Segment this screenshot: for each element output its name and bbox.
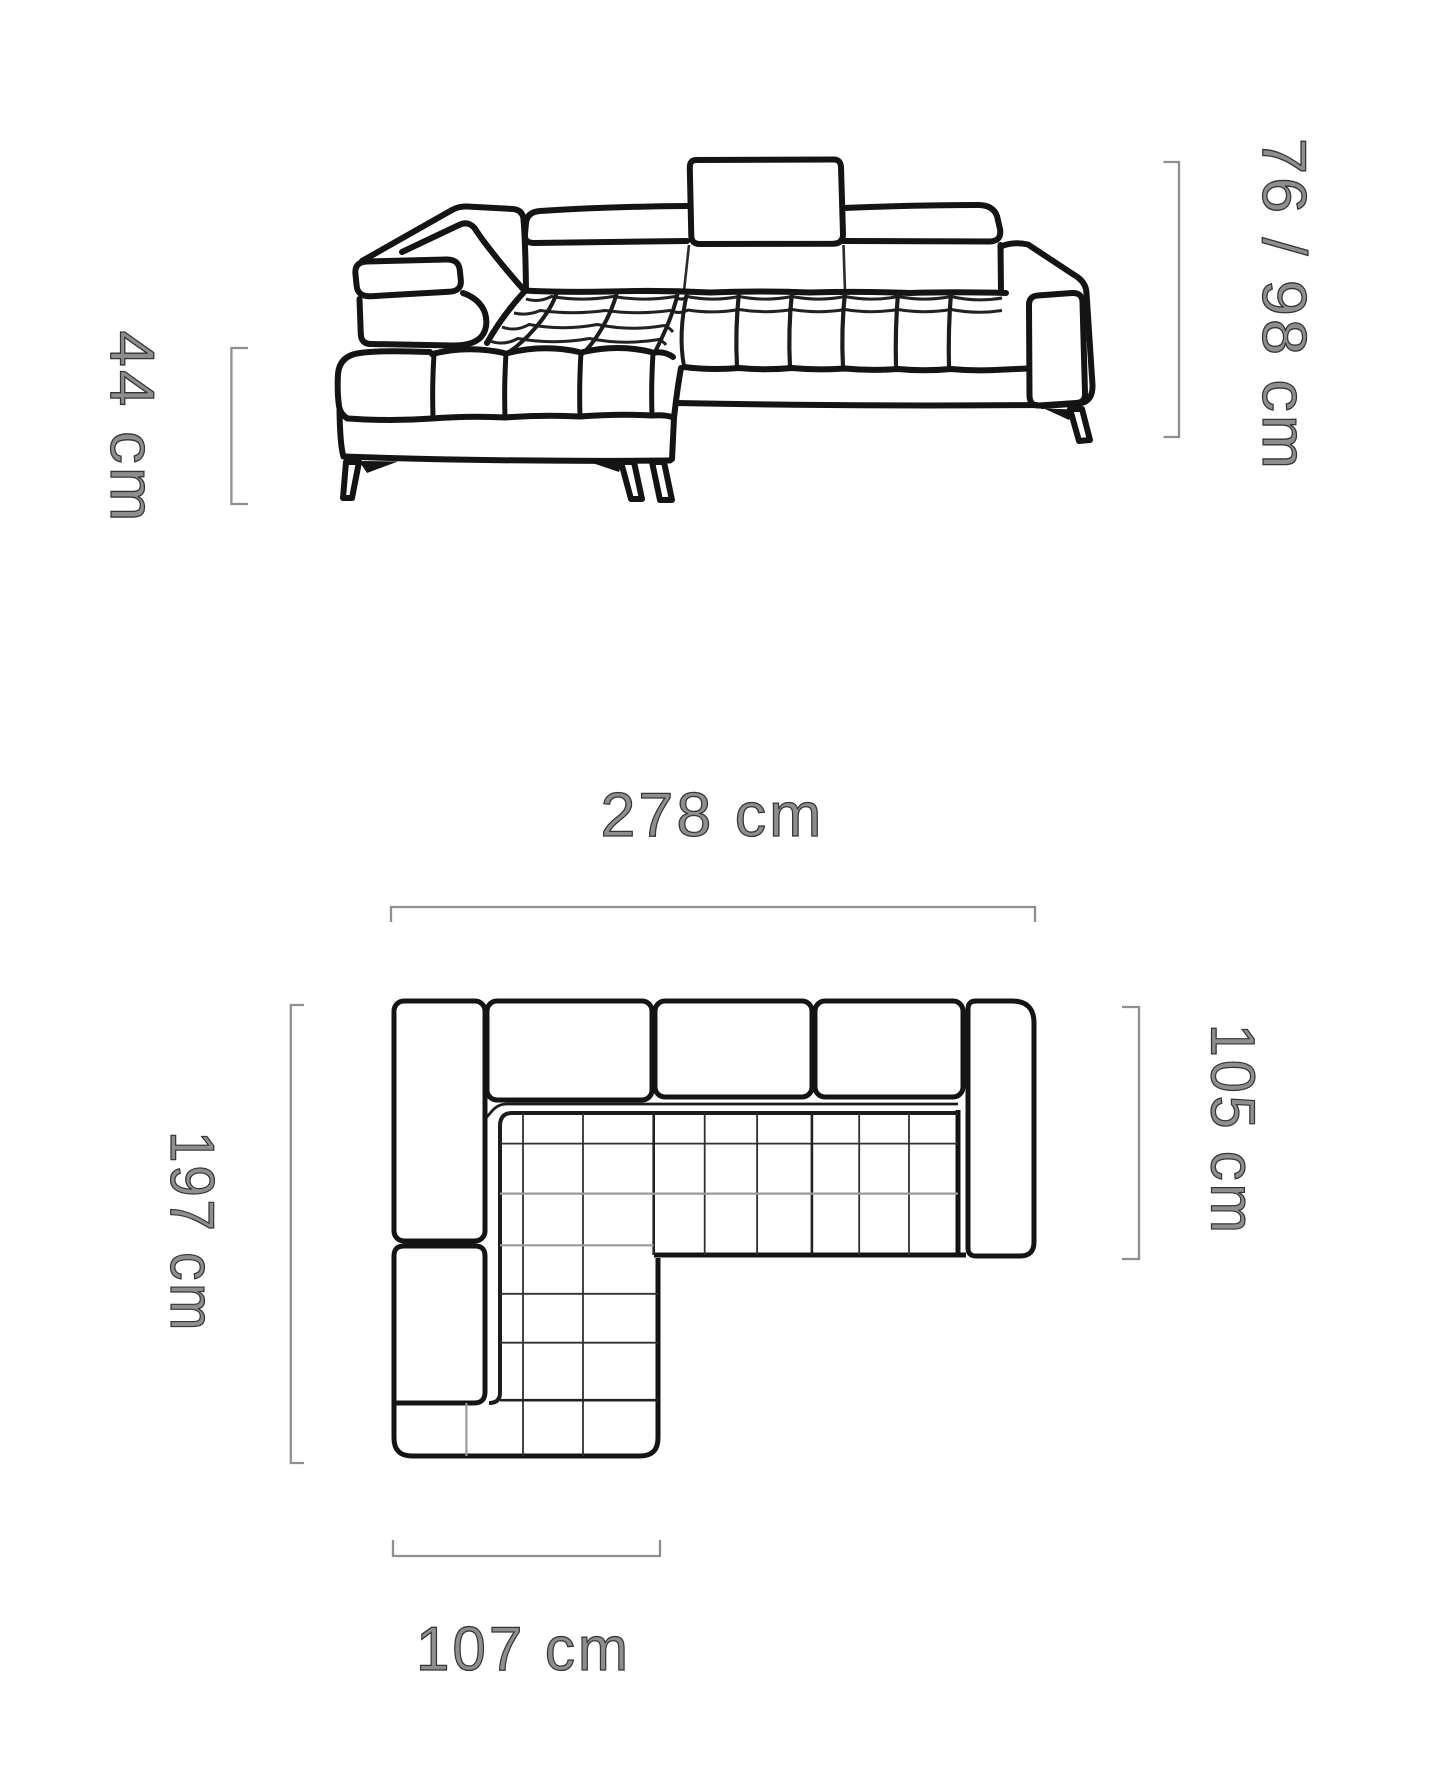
svg-text:107 cm: 107 cm — [416, 1615, 631, 1684]
svg-text:197 cm: 197 cm — [157, 1131, 226, 1333]
svg-text:76 / 98 cm: 76 / 98 cm — [1249, 138, 1318, 472]
svg-text:44 cm: 44 cm — [97, 331, 166, 525]
svg-text:105 cm: 105 cm — [1198, 1024, 1267, 1236]
svg-text:278 cm: 278 cm — [601, 781, 825, 850]
